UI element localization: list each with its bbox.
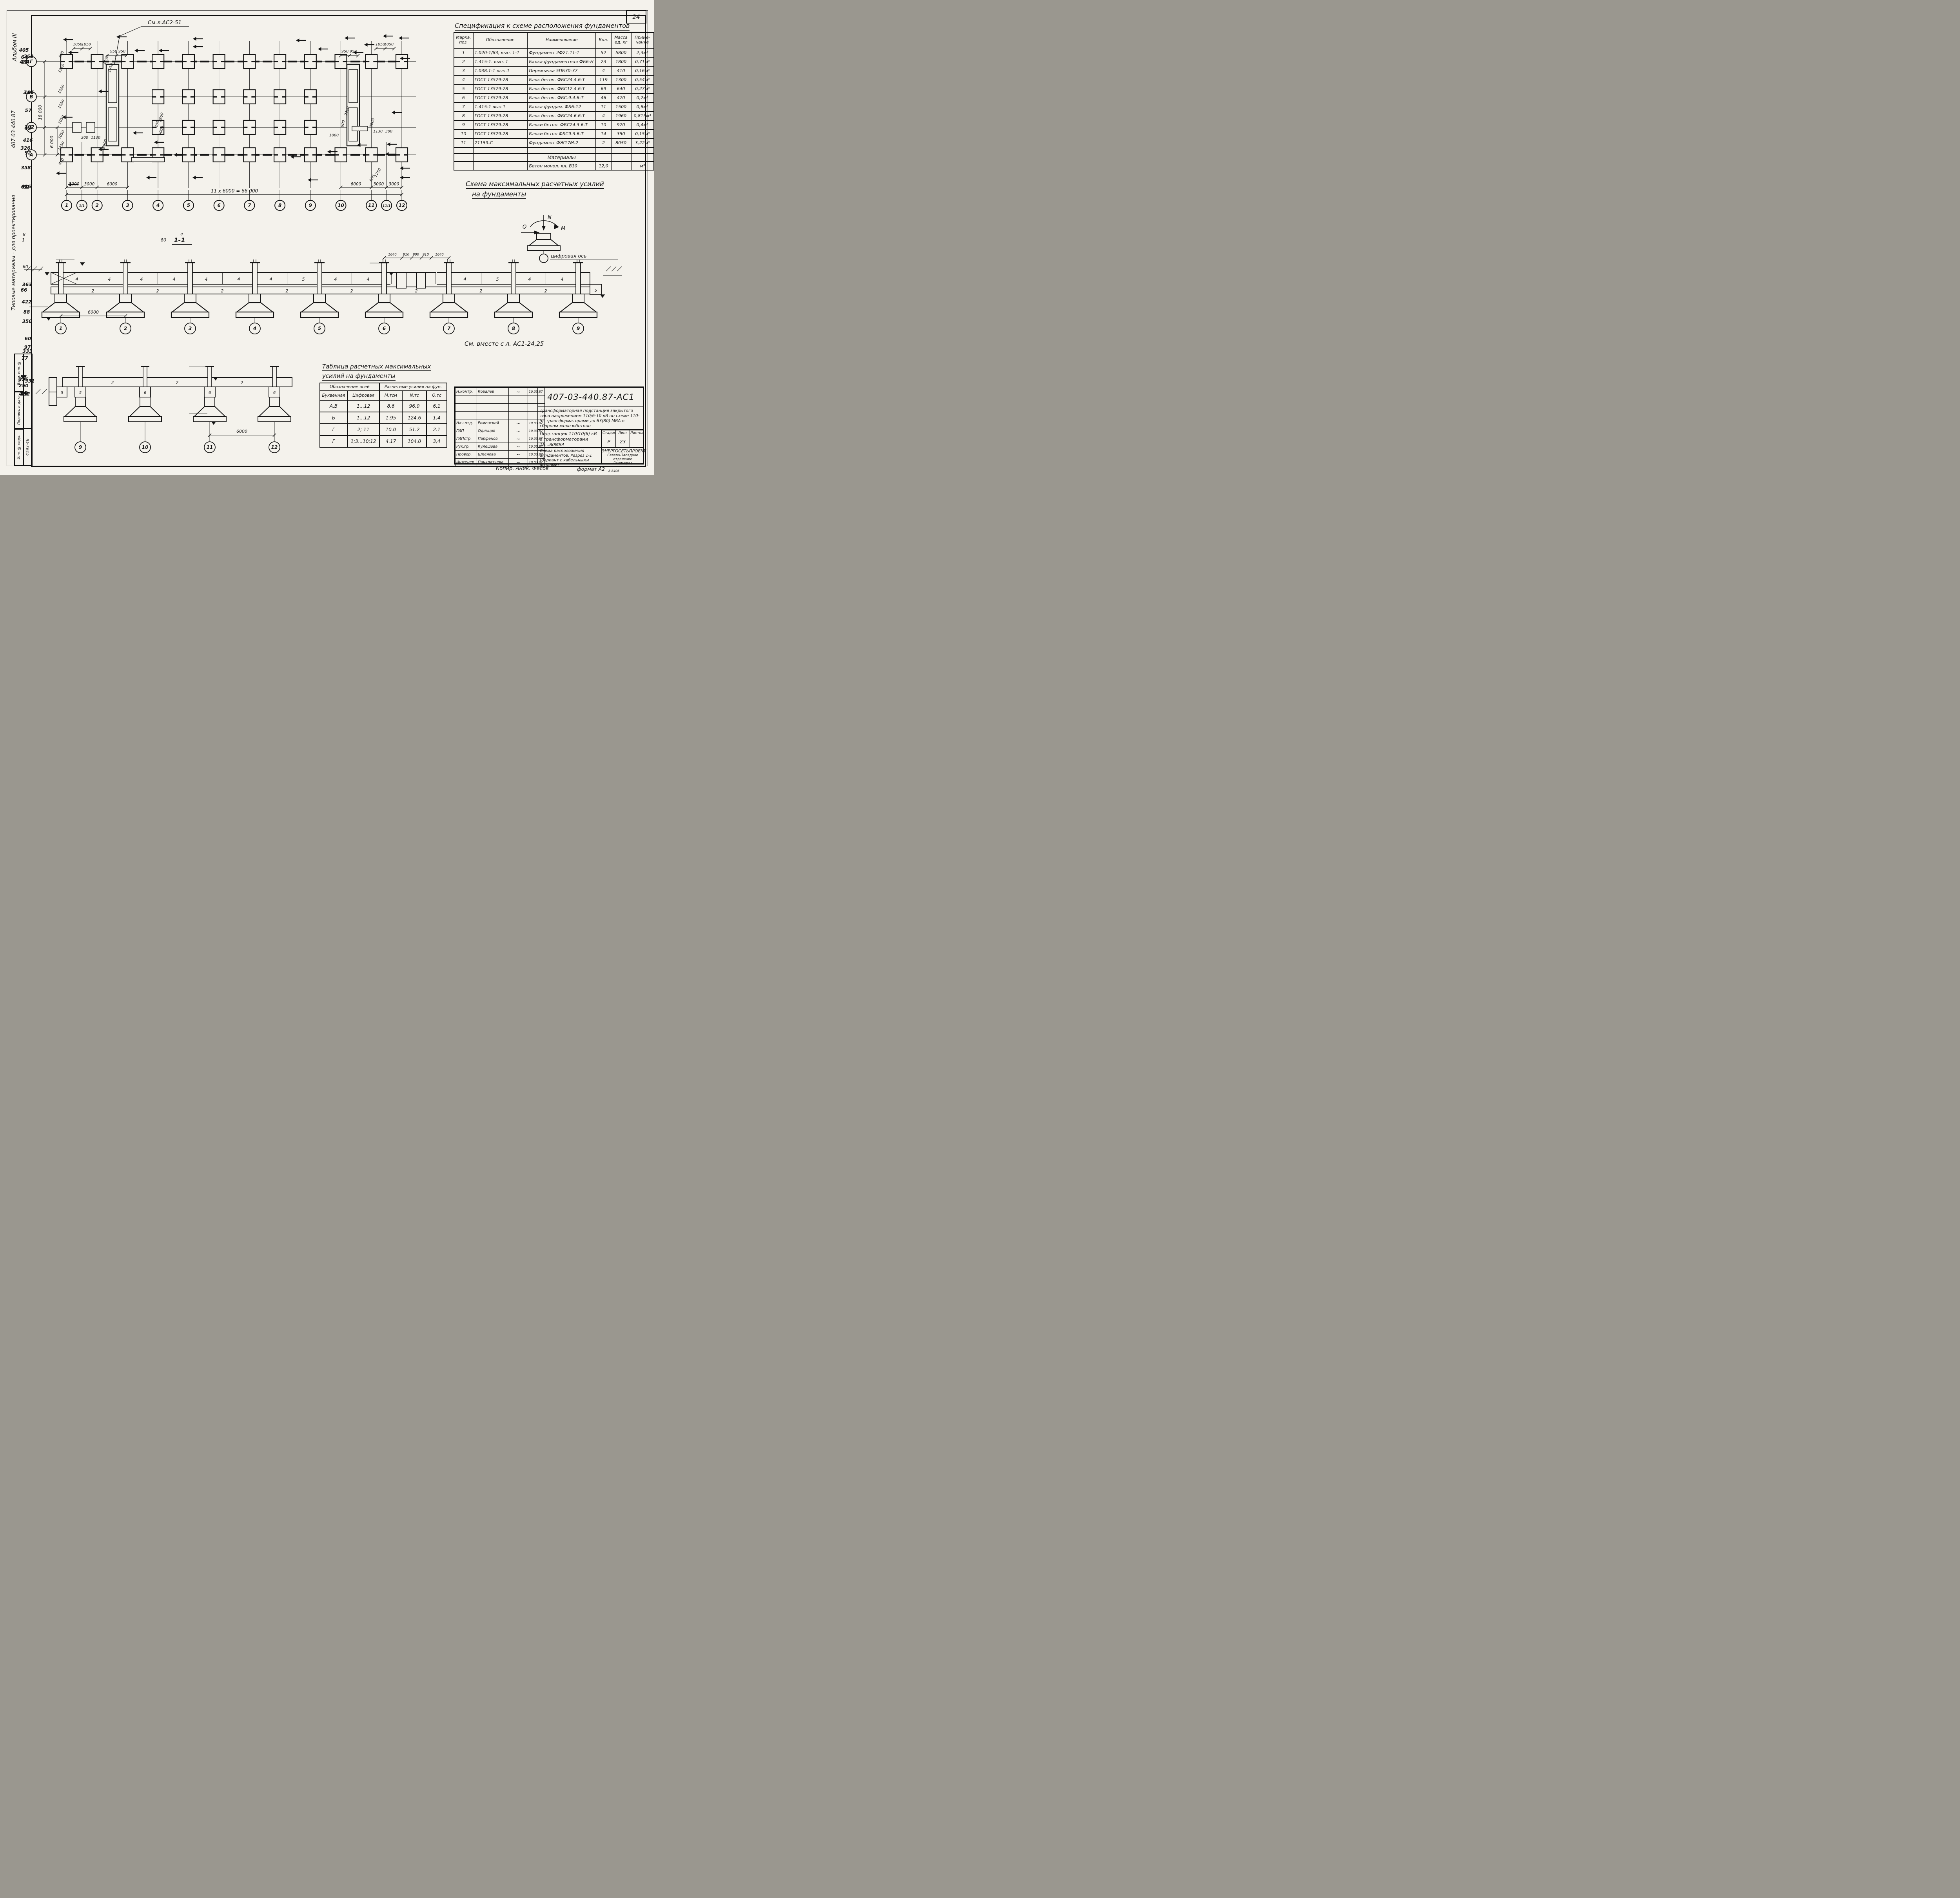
elevation-arrow (601, 295, 604, 298)
forces-cell: 2.1 (426, 424, 447, 435)
org-name-text: ЭНЕРГОСЕТЬПРОЕКТ (602, 449, 644, 454)
elevation-arrow (80, 263, 84, 265)
spec-cell (454, 154, 473, 161)
foundation-beam (131, 158, 165, 162)
footing-stem (378, 294, 390, 303)
ground-hatch (36, 389, 40, 394)
section-flag-arrow (328, 150, 330, 153)
dim-label: 300 (81, 136, 88, 140)
footing-base (236, 312, 274, 318)
footing-stem (140, 397, 150, 406)
footing-base (258, 417, 291, 422)
spec-cell (473, 154, 528, 161)
moment-arrow (554, 224, 559, 229)
column (446, 263, 451, 294)
footing-base (107, 312, 144, 318)
stage-table: СтадияЛистЛистовР23 (601, 430, 644, 448)
spec-cell: Обозначение (473, 33, 528, 48)
stage-header: Стадия (602, 430, 616, 436)
inv-number-text: 4193-46 (25, 439, 30, 456)
reference-note: См.л.АС2-51 (148, 20, 181, 26)
copier-note: Копир. Аник. Фесов (496, 466, 549, 472)
section-flag-label: 344 (23, 90, 33, 95)
stage-value: Р (602, 436, 616, 447)
force-table-title2-text: усилий на фундаменты (322, 372, 396, 381)
spec-cell: 1300 (611, 75, 631, 84)
beam-label: 2 (415, 289, 418, 294)
forces-cell: 1.4 (426, 412, 447, 424)
section-flag-arrow (154, 141, 157, 144)
footing-base (430, 312, 468, 318)
page-number-text: 24 (632, 13, 640, 20)
section-flag-label: 356 (18, 377, 28, 382)
footing-skirt (431, 303, 467, 312)
spec-cell: Блок бетон. ФБС24.4.6-Т (527, 75, 596, 84)
copier-note-text: Копир. Аник. Фесов (496, 466, 549, 472)
spec-cell: 410 (611, 66, 631, 75)
spec-cell: Перемычка 5ПБ30-37 (527, 66, 596, 75)
signature-row (456, 412, 545, 419)
spec-cell: 640 (611, 84, 631, 93)
foundation-beam (352, 126, 368, 131)
spec-cell: 8 (454, 111, 473, 120)
section-flag-arrow (345, 36, 348, 40)
axis-label: 6 (383, 326, 386, 331)
col-axis-label: 1 (65, 203, 68, 208)
spec-cell: 1 (454, 48, 473, 57)
ground-hatch (42, 389, 47, 394)
spec-cell (454, 161, 473, 170)
beam-label: 2 (241, 381, 243, 385)
spec-cell: Балка фундам. ФБ6-12 (527, 102, 596, 111)
block-label: 4 (270, 277, 272, 282)
spec-row: 8ГОСТ 13579-78Блок бетон. ФБС24.6.6-Т419… (454, 111, 654, 120)
beam-label: 2 (92, 289, 94, 294)
spec-cell: ГОСТ 13579-78 (473, 120, 528, 129)
print-code-text: 8 8406 (608, 469, 619, 473)
axis-label: 10 (142, 445, 149, 450)
stamp-label: Инв. № подл. (17, 435, 21, 459)
block-label: 4 (464, 277, 466, 282)
signature-cell (509, 404, 528, 412)
dim-label: 1050 (376, 42, 385, 47)
spec-cell (596, 154, 611, 161)
footing-base (64, 417, 97, 422)
spec-cell: 10 (454, 129, 473, 138)
beam-label: 2 (176, 381, 179, 385)
section-title: 1-1 (174, 236, 185, 244)
spec-cell: Бетон монол. кл. В10 (527, 161, 596, 170)
force-diagram-group: NMQцифровая ось (521, 215, 618, 263)
footing-base (301, 312, 338, 318)
column (382, 263, 387, 294)
forces-cell: 2; 11 (347, 424, 379, 435)
dim-label: 1050 (57, 115, 66, 125)
beam-label: 2 (544, 289, 547, 294)
stage-value: 23 (616, 436, 630, 447)
column (188, 263, 192, 294)
name-cell: Роменский (477, 419, 509, 427)
signature-cell: ~ (509, 459, 528, 466)
spec-row: 9ГОСТ 13579-78Блоки бетон. ФБС24.3.6-Т10… (454, 120, 654, 129)
section-flag-label: 405 (18, 47, 29, 53)
column (511, 263, 516, 294)
spec-cell: 0,815м³ (631, 111, 654, 120)
spec-cell: 0,4м³ (631, 120, 654, 129)
print-code: 8 8406 (608, 469, 619, 473)
signature-row: Провер.Шпенова~10.03.87 (456, 451, 545, 459)
col-axis-label: 8 (278, 203, 281, 208)
role-cell (456, 396, 477, 404)
spec-cell: 0,71м³ (631, 57, 654, 66)
section-flag-arrow (159, 49, 162, 52)
spec-cell: 69 (596, 84, 611, 93)
section-flag-label: 358 (21, 165, 31, 171)
footing-base (129, 417, 162, 422)
spec-row: Материалы (454, 154, 654, 161)
axis-label: 9 (79, 445, 82, 450)
signature-cell: ~ (509, 451, 528, 459)
section-flag-arrow (117, 35, 120, 38)
section-flag-arrow (193, 37, 196, 40)
footing-skirt (172, 303, 208, 312)
section-flag-arrow (69, 51, 71, 54)
forces-cell: Г (320, 424, 347, 435)
section-flag-arrow (400, 167, 403, 170)
col-axis-label: 9 (309, 203, 312, 208)
signature-row (456, 404, 545, 412)
block-label: 4 (76, 277, 78, 282)
footing-stem (184, 294, 196, 303)
axis-label: 1 (59, 326, 62, 331)
footing-skirt (107, 303, 143, 312)
spec-cell (596, 147, 611, 154)
name-cell: Одинцов (477, 427, 509, 435)
section-flag-arrow (308, 178, 311, 181)
forces-col-header: Цифровая (347, 391, 379, 400)
spec-cell: 1960 (611, 111, 631, 120)
dim-label: 1050 (82, 42, 91, 47)
description-text: Трансформаторная подстанция закрытого ти… (540, 408, 639, 428)
signature-row (456, 396, 545, 404)
ground-hatch (617, 267, 622, 271)
signature-row: Нач.отд.Роменский~10.03.87 (456, 419, 545, 427)
spec-cell (611, 147, 631, 154)
axis-label: 5 (318, 326, 321, 331)
role-cell: Нач.отд. (456, 419, 477, 427)
footing-skirt (495, 303, 532, 312)
forces-row: Г2; 1110.051.22.1 (320, 424, 447, 435)
sheet-page-number: 24 (626, 10, 646, 24)
footing-stem (205, 397, 215, 406)
spec-cell: 1.415-1. вып. 1 (473, 57, 528, 66)
section-flag-arrow (318, 47, 321, 51)
dim-label: 900 (340, 120, 346, 127)
footing-skirt (259, 406, 290, 417)
stage-header: Лист (616, 430, 630, 436)
object-name: Подстанция 110/10(6) кВ с трансформатора… (538, 430, 601, 448)
stage-value (630, 436, 643, 447)
block-label: 4 (238, 277, 240, 282)
section-flag-label: 77 (22, 356, 28, 361)
spec-cell: 0,2м³ (631, 93, 654, 102)
col-axis-label: 2 (96, 203, 99, 208)
spec-cell: Масса ед. кг (611, 33, 631, 48)
spec-cell: 4 (596, 111, 611, 120)
forces-cell: Г (320, 435, 347, 447)
block-label: 5 (496, 277, 499, 282)
spec-cell: 0,6м³ (631, 102, 654, 111)
spec-cell: ГОСТ 13579-78 (473, 93, 528, 102)
signature-cell (509, 396, 528, 404)
block-label: 4 (205, 277, 208, 282)
section-flag-label: 416 (18, 391, 29, 397)
beam-label: 2 (350, 289, 353, 294)
ground-hatch (606, 267, 611, 271)
force-scheme-title2-text: на фундаменты (472, 191, 526, 199)
footing-stem (314, 294, 325, 303)
beam-label: 2 (480, 289, 483, 294)
footing-skirt (129, 406, 161, 417)
spec-cell (631, 154, 654, 161)
spec-cell: 8050 (611, 138, 631, 147)
spec-row: 6ГОСТ 13579-78Блок бетон. ФБС.9.4.6-Т464… (454, 93, 654, 102)
spec-cell: 5800 (611, 48, 631, 57)
spec-cell: 970 (611, 120, 631, 129)
forces-row: Б1...121.95124.61.4 (320, 412, 447, 424)
dim-label: 300 (385, 129, 392, 134)
block-label: 4 (528, 277, 531, 282)
sheet-title: Схема расположения фундаментов. Разрез 1… (538, 448, 601, 463)
drawing-sheet: 24 Альбом III 407-03-440.87 Типовые мате… (0, 0, 654, 475)
spec-cell: Материалы (527, 154, 596, 161)
col-axis-label: 6 (217, 203, 220, 208)
column (576, 263, 581, 294)
name-cell: Парфенов (477, 435, 509, 443)
moment-label: M (561, 226, 565, 232)
dim-label: 910 (403, 253, 409, 257)
doc-number-text: 407-03-440.87-АС1 (547, 392, 634, 402)
spec-cell (473, 147, 528, 154)
forces-cell: 10.0 (379, 424, 402, 435)
elevation-arrow (212, 422, 216, 425)
section-flag-arrow (135, 49, 138, 52)
section-flag-arrow (296, 39, 299, 42)
pit-notch (397, 272, 406, 288)
shear-label: Q (523, 224, 526, 230)
block-label: 5 (302, 277, 305, 282)
signature-cell: ~ (509, 419, 528, 427)
org-branch-text: Северо-Западное отделение (602, 454, 644, 461)
signature-cell: ~ (509, 435, 528, 443)
block-label: 4 (334, 277, 337, 282)
spec-cell: Блок бетон. ФБС.9.4.6-Т (527, 93, 596, 102)
footing-stem (75, 397, 85, 406)
dim-label: 1130 (91, 136, 100, 140)
forces-row: Г1;3...10;124.17104.03,4 (320, 435, 447, 447)
dim-label: 1050 (57, 130, 66, 140)
dim-label: 950 (118, 49, 125, 54)
force-table-title1-text: Таблица расчетных максимальных (322, 363, 431, 371)
sheet-title-text: Схема расположения фундаментов. Разрез 1… (540, 449, 592, 467)
dim-label: 6000 (351, 182, 361, 187)
margin-series-number: 407-03-440.87 (11, 100, 17, 159)
spec-cell: Блок бетон. ФБС24.6.6-Т (527, 111, 596, 120)
spec-row: 31.038.1-1 вып.1Перемычка 5ПБ30-3744100,… (454, 66, 654, 75)
block-label: 6 (209, 391, 211, 395)
spec-cell: ГОСТ 13579-78 (473, 111, 528, 120)
forces-cell: 104.0 (402, 435, 426, 447)
section-flag-label: 326 (20, 145, 30, 151)
section-flag-arrow (365, 43, 367, 46)
dim-label: 1050 (57, 99, 66, 109)
dim-label: 1150 (102, 55, 110, 65)
spec-cell: ГОСТ 13579-78 (473, 75, 528, 84)
organization: ЭНЕРГОСЕТЬПРОЕКТ Северо-Западное отделен… (601, 448, 644, 463)
section-flag-arrow (174, 153, 177, 156)
section-flag-arrow (193, 176, 196, 179)
spec-row: 1171159-СФундамент ФЖ17М-2280503,22м³ (454, 138, 654, 147)
section-flag-arrow (383, 34, 386, 38)
footing-skirt (43, 303, 79, 312)
section-flag-label: 57 (25, 108, 32, 113)
spec-cell: 1.415-1 вып.1 (473, 102, 528, 111)
forces-cell: 51.2 (402, 424, 426, 435)
role-cell: ГИПстр. (456, 435, 477, 443)
spec-cell (611, 154, 631, 161)
spec-cell: ГОСТ 13579-78 (473, 84, 528, 93)
forces-row: А,В1...128.696.06.1 (320, 400, 447, 412)
spec-title-text: Спецификация к схеме расположения фундам… (455, 22, 630, 31)
footing-stem (572, 294, 584, 303)
forces-table: Обозначение осейРасчетные усилия на фун.… (319, 383, 447, 448)
ground-hatch (38, 267, 43, 271)
spec-cell: 52 (596, 48, 611, 57)
dim-label: 1050 (57, 84, 66, 94)
signature-cell (509, 412, 528, 419)
beam-label: 2 (156, 289, 159, 294)
name-cell: Шпенова (477, 451, 509, 459)
spec-cell: 1500 (611, 102, 631, 111)
footing-base (365, 312, 403, 318)
footing-base (171, 312, 209, 318)
dim-label: 1130 (373, 129, 383, 134)
wall-block-label: 5 (61, 391, 63, 395)
dim-label: 6 000 (49, 136, 54, 148)
section-flag-label: 92 (25, 150, 31, 156)
detail-block (73, 122, 81, 132)
spec-cell: 23 (596, 57, 611, 66)
footing-skirt (560, 303, 596, 312)
note-leader (120, 27, 141, 36)
forces-cell: 4.17 (379, 435, 402, 447)
axis-bubble (539, 254, 548, 263)
spec-row: 11.020-1/83, вып. 1-1Фундамент 2Ф21.11-1… (454, 48, 654, 57)
section-flag-label: 262 (24, 54, 33, 59)
document-number: 407-03-440.87-АС1 (538, 388, 644, 407)
spec-cell: Фундамент ФЖ17М-2 (527, 138, 596, 147)
spec-cell: Марка, поз. (454, 33, 473, 48)
block-label: 6 (144, 391, 146, 395)
elevation-arrow (47, 318, 51, 320)
forces-cell: 8.6 (379, 400, 402, 412)
force-diagram: NMQцифровая ось (519, 214, 621, 267)
footing-skirt (237, 303, 273, 312)
forces-col-header: М,тсм (379, 391, 402, 400)
spec-cell (611, 161, 631, 170)
fnd-skirt (529, 240, 559, 246)
spec-cell (631, 147, 654, 154)
role-cell: Рук.гр. (456, 443, 477, 451)
ground-hatch (32, 267, 37, 271)
title-block: Н.контр.Ковалев~10.03.87Нач.отд.Роменски… (454, 386, 644, 465)
dim-label: 6000 (236, 429, 247, 434)
name-cell (477, 396, 509, 404)
spec-row: 21.415-1. вып. 1Балка фундаментная ФБ6-Н… (454, 57, 654, 66)
spec-cell: 71159-С (473, 138, 528, 147)
name-cell (477, 412, 509, 419)
spec-cell: 46 (596, 93, 611, 102)
axis-label: 2 (124, 326, 127, 331)
overall-dim-label: 11 х 6000 = 66 000 (211, 188, 258, 194)
section-flag-label: 302 (24, 124, 34, 130)
signature-row: ГИПОдинцов~10.03.87 (456, 427, 545, 435)
col-axis-label: 10 (338, 203, 344, 208)
footing-base (495, 312, 532, 318)
axis-label: 3 (189, 326, 192, 331)
dim-label: 950 (350, 49, 357, 54)
spec-cell: Блоки бетон ФБС9.3.6-Т (527, 129, 596, 138)
column (317, 263, 322, 294)
section-fragment: 222559610611612281466000 (33, 355, 308, 461)
column (208, 367, 212, 387)
forces-col-header: Q,тс (426, 391, 447, 400)
spec-cell: 1.020-1/83, вып. 1-1 (473, 48, 528, 57)
signature-cell: ~ (509, 388, 528, 396)
column (58, 263, 63, 294)
name-cell (477, 404, 509, 412)
spec-row (454, 147, 654, 154)
spec-cell: ГОСТ 13579-78 (473, 129, 528, 138)
dim-label: 950 (110, 49, 117, 54)
block-label: 4 (561, 277, 564, 282)
spec-row: 5ГОСТ 13579-78Блок бетон. ФБС12.4.6-Т696… (454, 84, 654, 93)
spec-cell: 10 (596, 120, 611, 129)
col-axis-label: 11 (368, 203, 375, 208)
signature-row: Н.контр.Ковалев~10.03.87 (456, 388, 545, 396)
org-city-text: Ленинград (602, 461, 644, 465)
section-flag-label: 416 (22, 138, 33, 143)
spec-cell: 0,15м³ (631, 129, 654, 138)
spec-cell: 6 (454, 93, 473, 102)
stamp-label: Подпись и дата (17, 396, 21, 425)
column (123, 263, 128, 294)
section-flag-arrow (193, 45, 196, 48)
section-flag-arrow (99, 90, 102, 93)
forces-cell: 1.95 (379, 412, 402, 424)
spec-cell: м³ (631, 161, 654, 170)
force-table-title-1: Таблица расчетных максимальных (322, 363, 431, 370)
spec-row: Бетон монол. кл. В1012,0м³ (454, 161, 654, 170)
see-note-text: См. вместе с л. АС1-24,25 (465, 340, 544, 347)
section-flag-arrow (386, 152, 388, 156)
section-flag-label: 416 (21, 184, 31, 189)
spec-cell: Приме- чание (631, 33, 654, 48)
margin-album-label: Альбом III (12, 18, 18, 76)
spec-cell: 0,16м³ (631, 66, 654, 75)
section-flag-arrow (147, 176, 149, 179)
spec-cell: Блоки бетон. ФБС24.3.6-Т (527, 120, 596, 129)
